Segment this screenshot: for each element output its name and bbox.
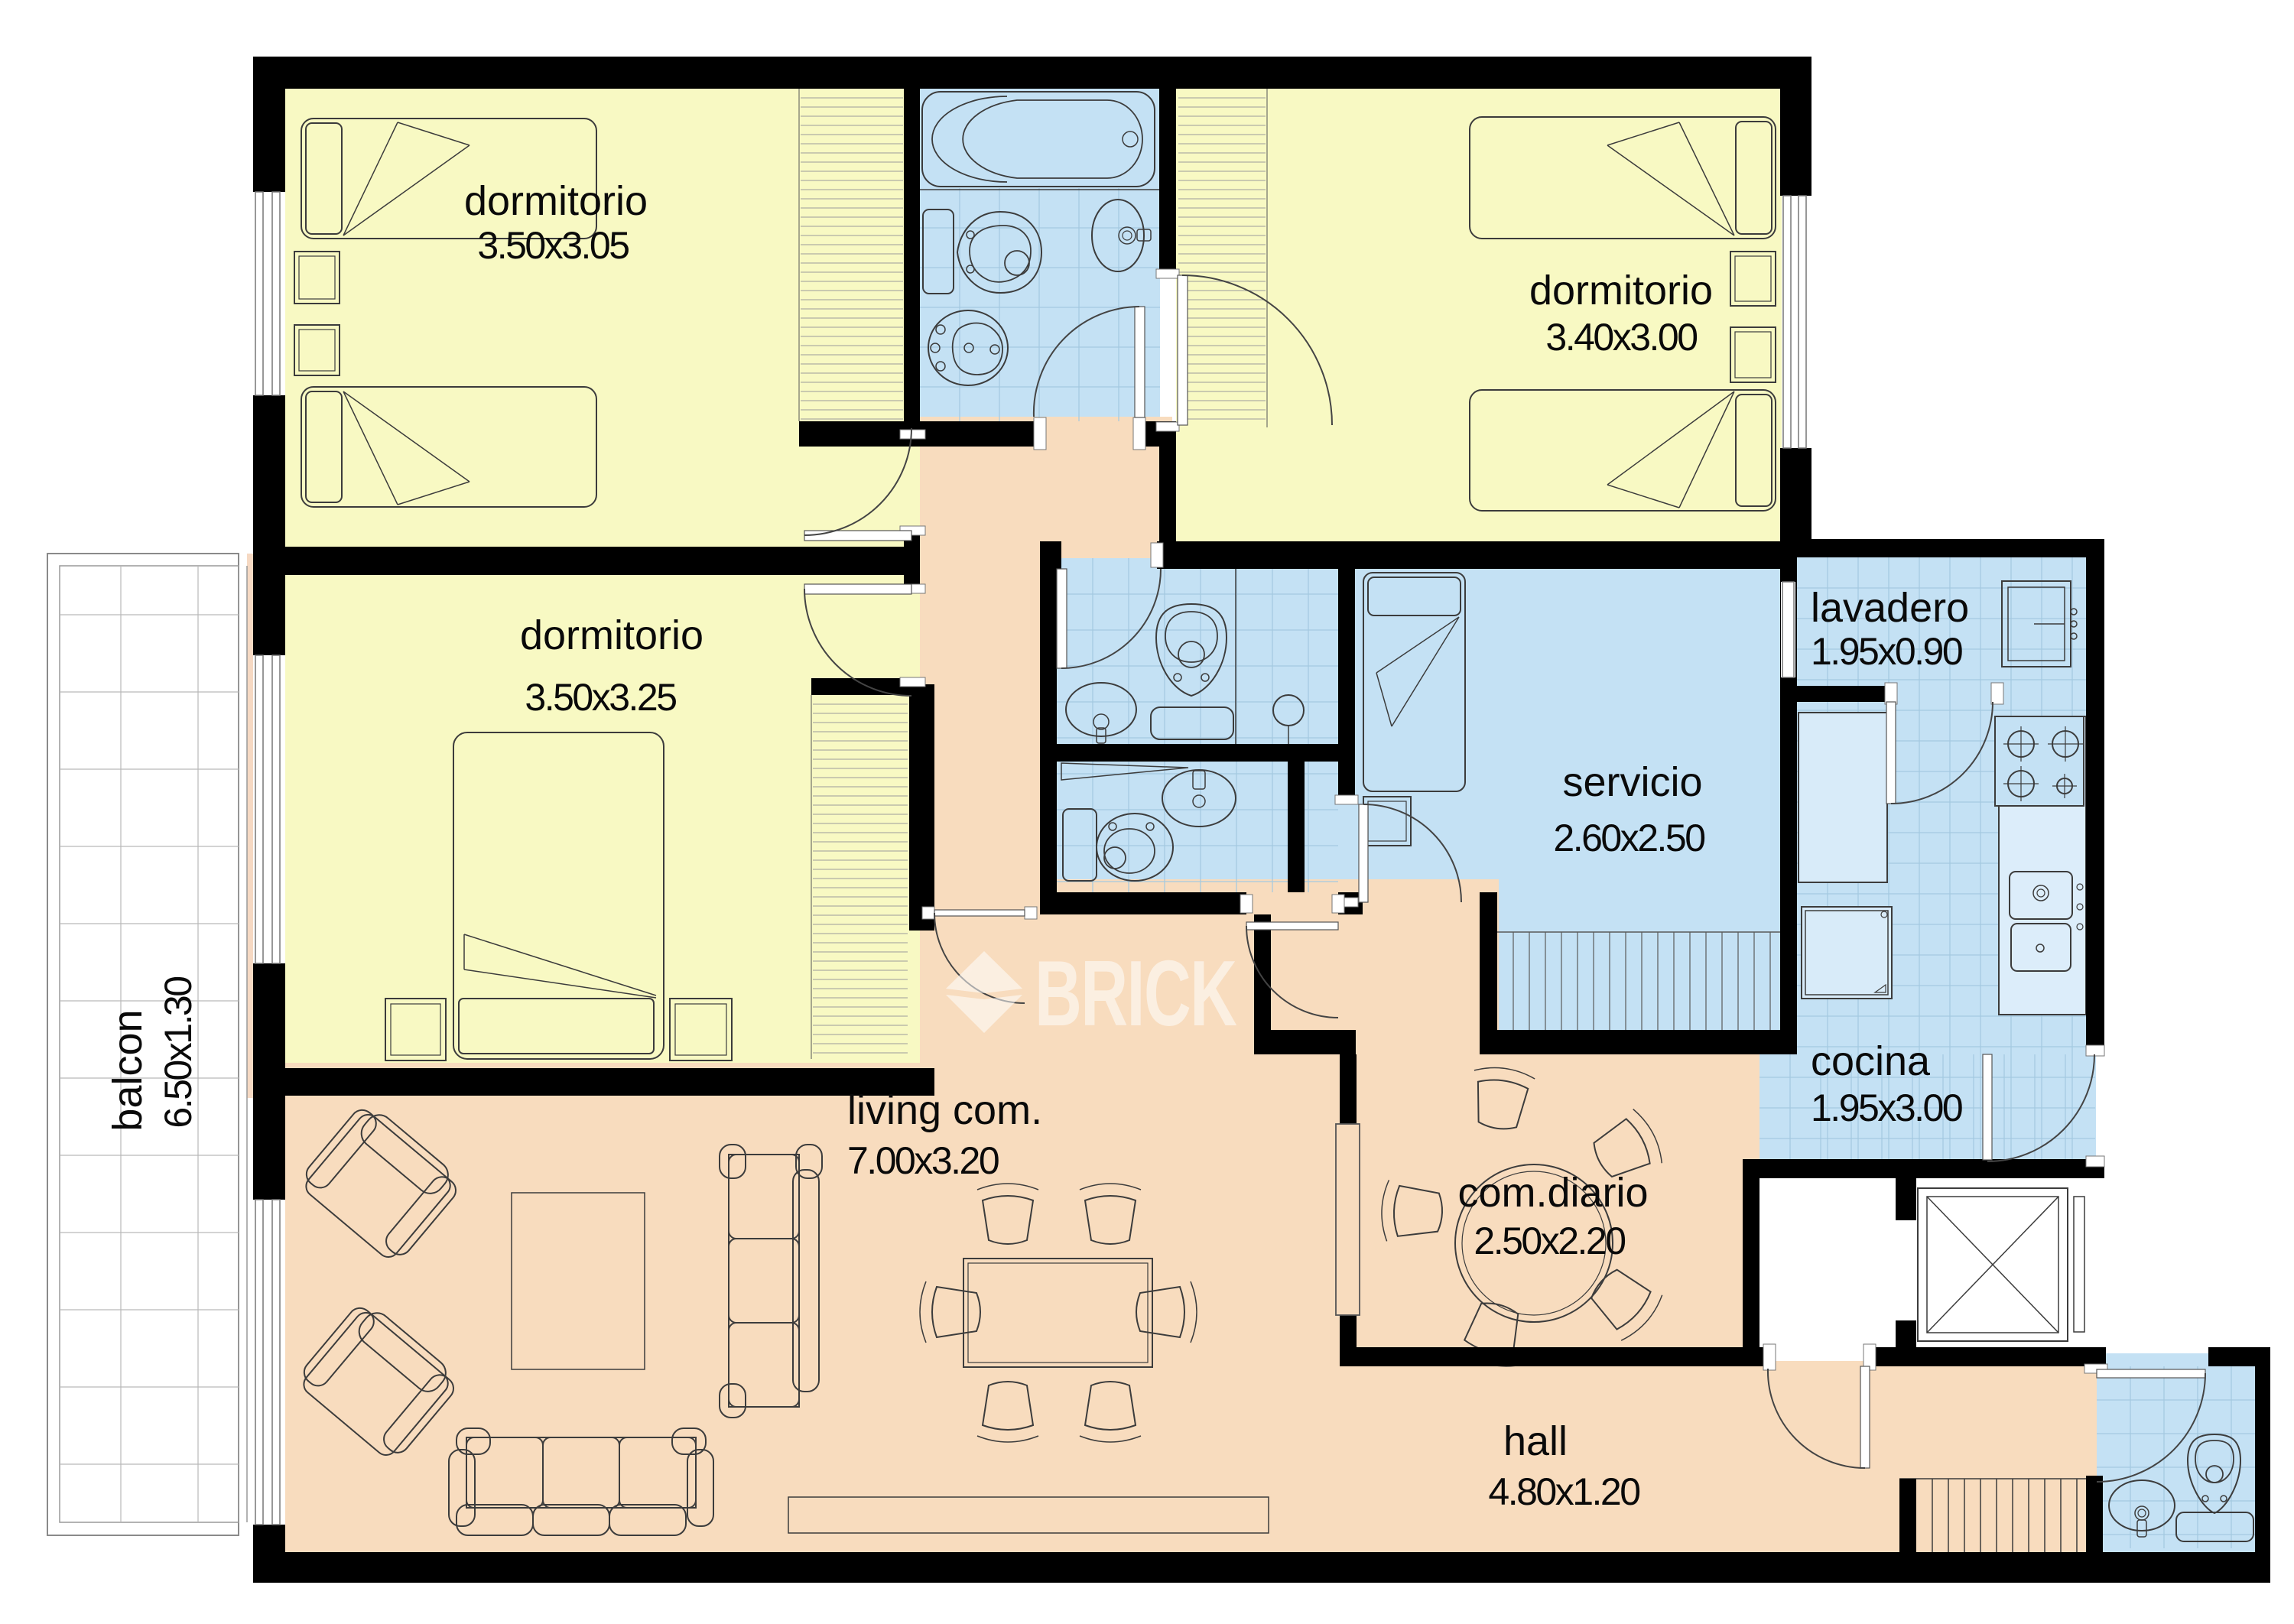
svg-text:3.40x3.00: 3.40x3.00 bbox=[1545, 316, 1697, 359]
svg-text:3.50x3.25: 3.50x3.25 bbox=[525, 676, 676, 719]
svg-text:2.50x2.20: 2.50x2.20 bbox=[1474, 1220, 1625, 1262]
svg-text:7.00x3.20: 7.00x3.20 bbox=[847, 1139, 999, 1182]
svg-text:BRICK: BRICK bbox=[1035, 942, 1237, 1046]
svg-text:living com.: living com. bbox=[847, 1087, 1042, 1133]
svg-text:servicio: servicio bbox=[1562, 759, 1702, 805]
svg-text:dormitorio: dormitorio bbox=[464, 178, 648, 224]
svg-text:hall: hall bbox=[1503, 1418, 1568, 1464]
svg-text:com.diario: com.diario bbox=[1457, 1170, 1648, 1216]
svg-text:lavadero: lavadero bbox=[1811, 585, 1969, 631]
svg-text:1.95x0.90: 1.95x0.90 bbox=[1811, 630, 1962, 673]
svg-text:6.50x1.30: 6.50x1.30 bbox=[157, 977, 200, 1129]
svg-text:2.60x2.50: 2.60x2.50 bbox=[1553, 817, 1704, 859]
svg-text:dormitorio: dormitorio bbox=[520, 612, 703, 658]
svg-text:1.95x3.00: 1.95x3.00 bbox=[1811, 1086, 1962, 1129]
svg-text:4.80x1.20: 4.80x1.20 bbox=[1488, 1470, 1639, 1513]
svg-text:cocina: cocina bbox=[1811, 1038, 1931, 1084]
svg-text:3.50x3.05: 3.50x3.05 bbox=[477, 224, 629, 267]
svg-text:dormitorio: dormitorio bbox=[1529, 268, 1713, 313]
svg-text:balcon: balcon bbox=[105, 1009, 151, 1131]
